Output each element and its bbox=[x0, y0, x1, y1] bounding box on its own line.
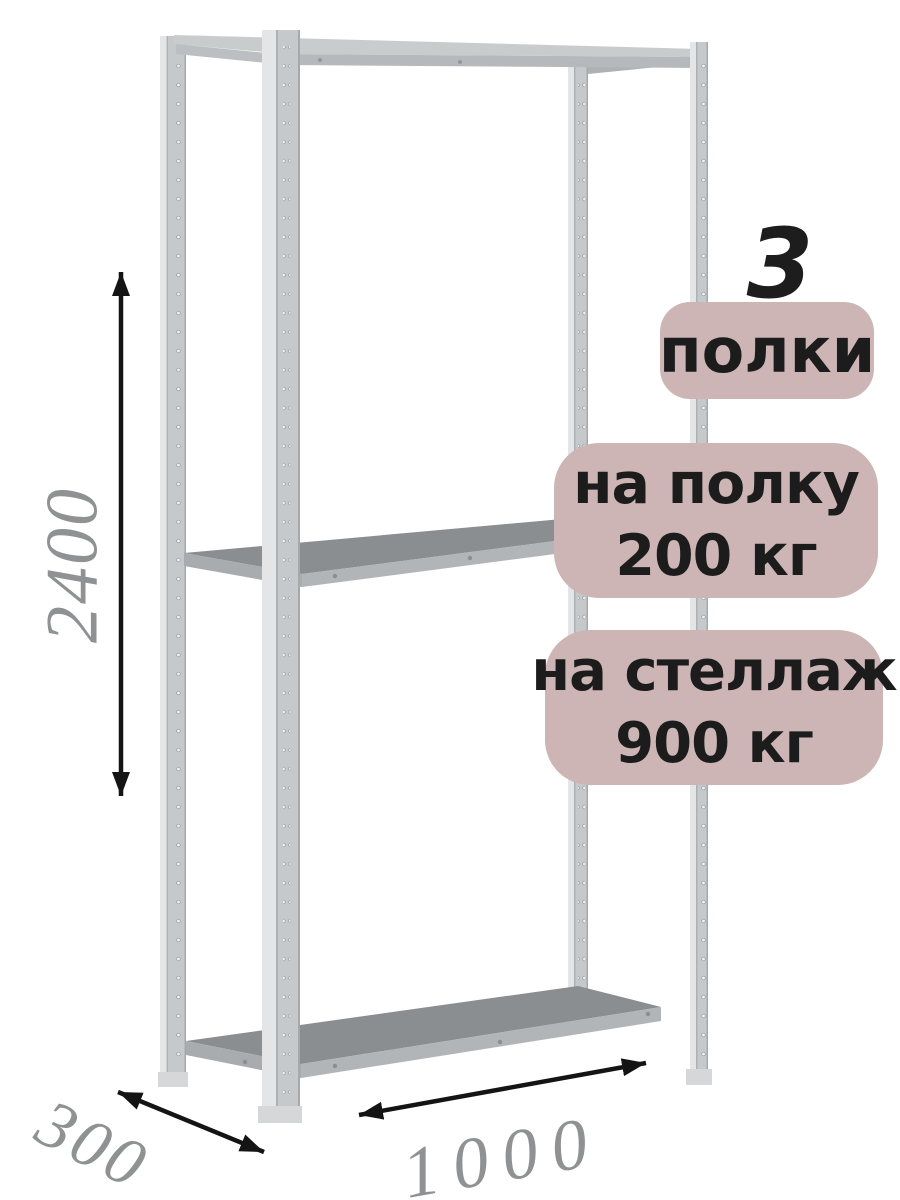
product-image: 2400 300 1000 3 полки на полку 200 кг на… bbox=[0, 0, 900, 1200]
post-perforations bbox=[175, 52, 182, 1064]
post-foot bbox=[258, 1106, 302, 1123]
shelf-count-label: полки bbox=[659, 314, 875, 387]
rack-post-back-left bbox=[158, 36, 188, 1087]
rack-load-badge: на стеллаж 900 кг bbox=[545, 630, 883, 785]
post-perforations bbox=[283, 46, 290, 1102]
shelving-rack-illustration bbox=[0, 0, 900, 1200]
shelf-load-badge: на полку 200 кг bbox=[554, 443, 878, 598]
rack-load-value: 900 кг bbox=[615, 708, 813, 780]
shelf-load-value: 200 кг bbox=[615, 521, 816, 593]
rack-bottom-shelf bbox=[186, 986, 661, 1078]
rack-top-shelf bbox=[174, 35, 700, 68]
shelf-load-text: на полку bbox=[573, 449, 859, 521]
post-foot bbox=[686, 1069, 712, 1085]
shelf-count-number: 3 bbox=[728, 212, 832, 316]
rack-post-front-left bbox=[258, 30, 302, 1123]
rack-load-text: на стеллаж bbox=[531, 636, 896, 708]
post-foot bbox=[158, 1072, 188, 1087]
height-dimension-label: 2400 bbox=[33, 473, 113, 658]
shelf-count-badge: полки bbox=[660, 302, 874, 399]
